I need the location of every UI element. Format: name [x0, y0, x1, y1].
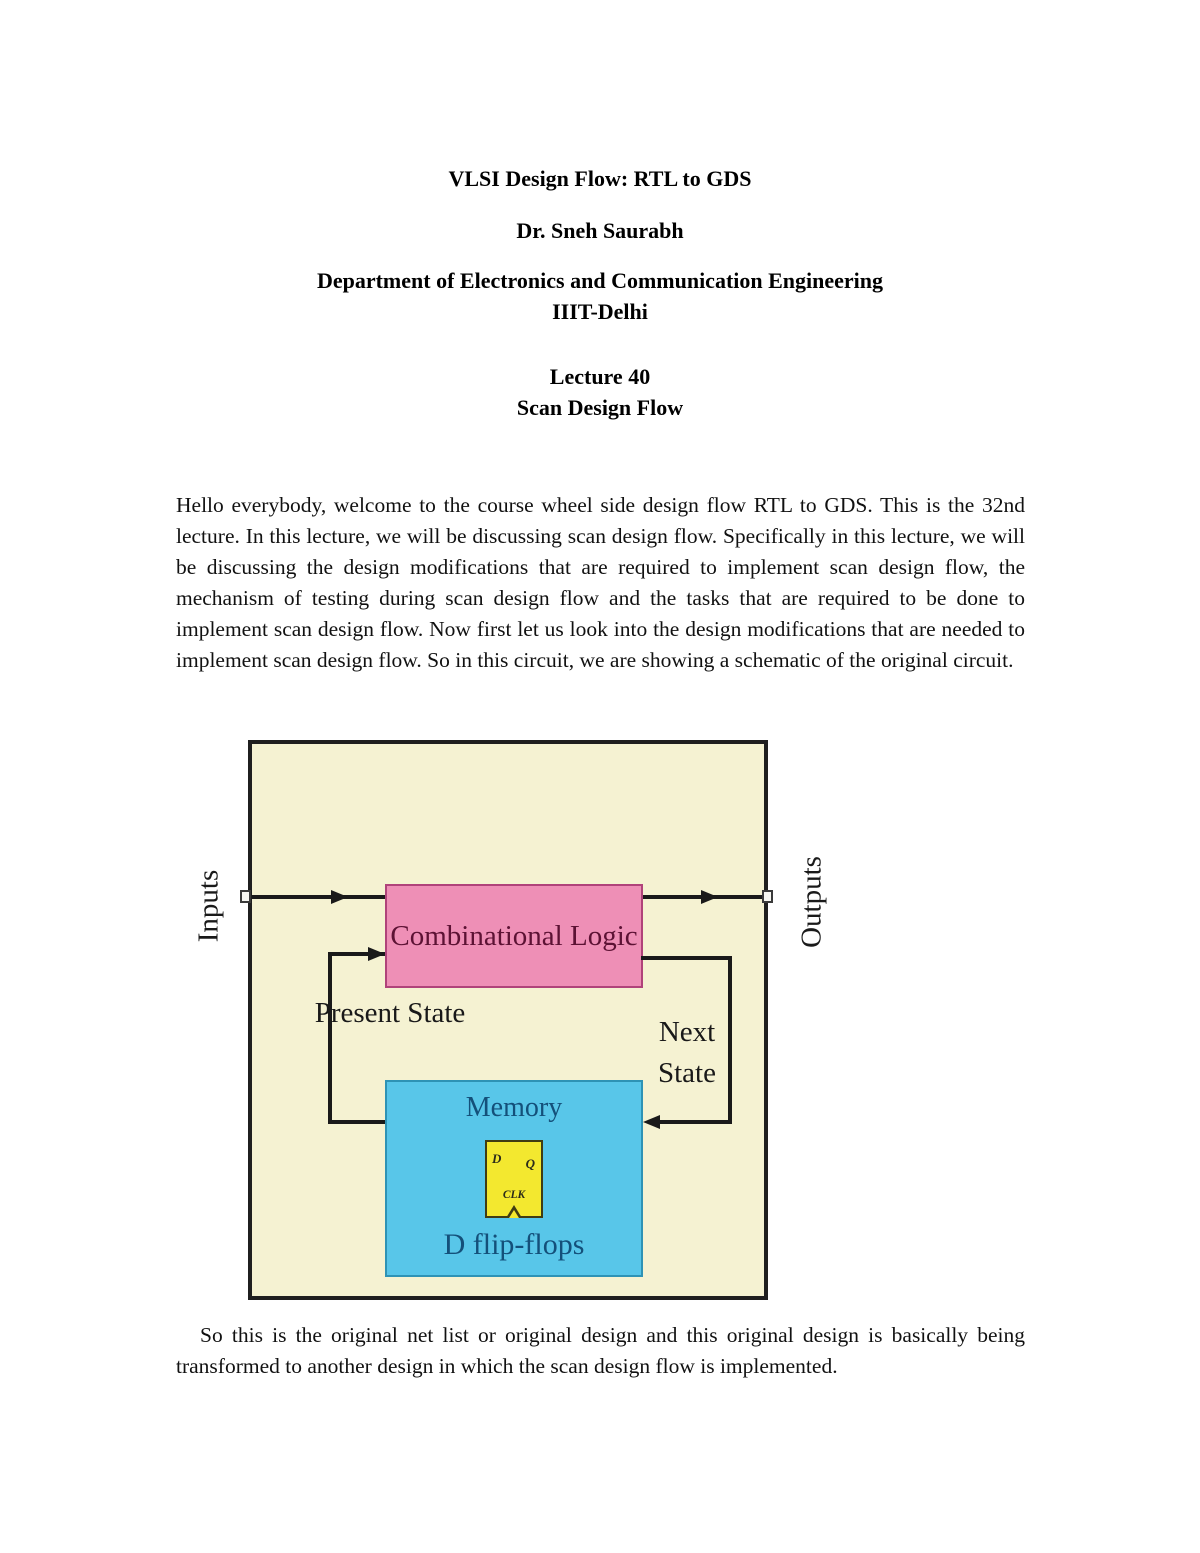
next-state-wire-bottom: [655, 1120, 732, 1124]
input-port: [240, 890, 251, 903]
output-arrowhead-icon: [701, 890, 718, 904]
next-state-wire-top: [641, 956, 732, 960]
author-name: Dr. Sneh Saurabh: [0, 217, 1200, 244]
next-state-arrowhead-icon: [643, 1115, 660, 1129]
document-page: VLSI Design Flow: RTL to GDS Dr. Sneh Sa…: [0, 0, 1200, 1553]
input-wire: [252, 895, 385, 899]
combinational-logic-label: Combinational Logic: [390, 916, 637, 956]
next-state-label: Next State: [632, 1012, 742, 1094]
flip-flop-q-pin-label: Q: [526, 1156, 535, 1172]
closing-paragraph: So this is the original net list or orig…: [176, 1320, 1025, 1382]
present-state-wire-bottom: [330, 1120, 387, 1124]
inputs-label: Inputs: [193, 870, 226, 943]
flip-flop-clk-pin-label: CLK: [487, 1189, 541, 1201]
combinational-logic-box: Combinational Logic: [385, 884, 643, 988]
department-name: Department of Electronics and Communicat…: [0, 267, 1200, 294]
intro-paragraph: Hello everybody, welcome to the course w…: [176, 490, 1025, 676]
output-port: [762, 890, 773, 903]
present-state-wire-vertical: [328, 952, 332, 1124]
present-state-arrowhead-icon: [368, 947, 385, 961]
flip-flop-d-pin-label: D: [492, 1151, 501, 1167]
memory-label: Memory: [385, 1092, 643, 1124]
d-flip-flop-symbol: D Q CLK: [485, 1140, 543, 1218]
present-state-label: Present State: [305, 993, 475, 1034]
input-arrowhead-icon: [331, 890, 348, 904]
lecture-title: Scan Design Flow: [0, 394, 1200, 421]
institute-name: IIIT-Delhi: [0, 298, 1200, 325]
outputs-label: Outputs: [796, 856, 829, 948]
document-title: VLSI Design Flow: RTL to GDS: [0, 165, 1200, 192]
lecture-number: Lecture 40: [0, 363, 1200, 390]
d-flip-flops-label: D flip-flops: [385, 1228, 643, 1262]
clock-wedge-inner-icon: [509, 1210, 519, 1218]
